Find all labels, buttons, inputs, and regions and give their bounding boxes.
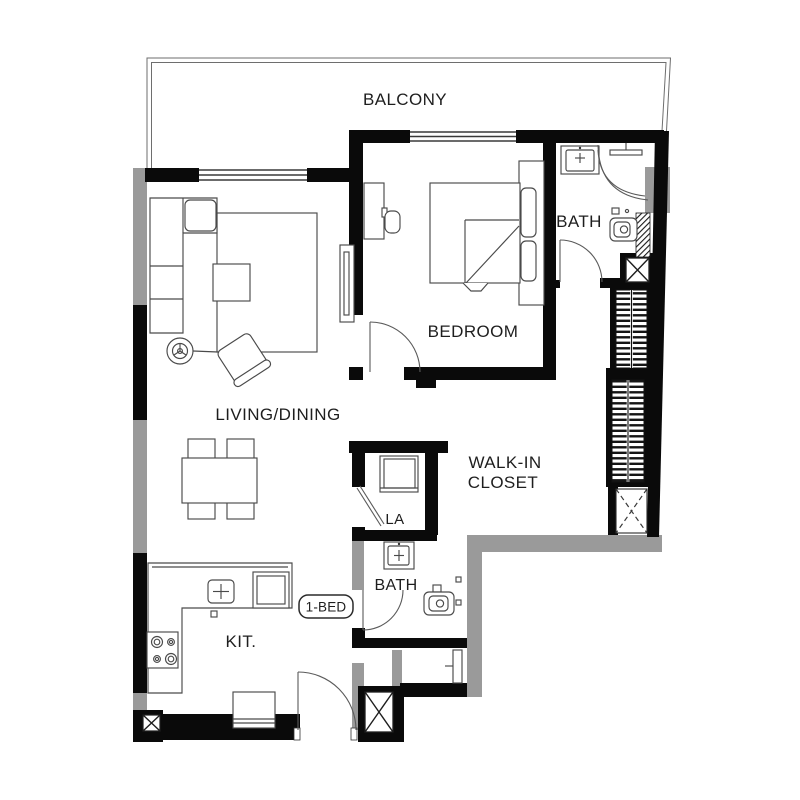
floor-plan-canvas: BALCONY BEDROOM BATH LIVING/DINING WALK-… (0, 0, 800, 800)
floor-plan-drawing: BALCONY BEDROOM BATH LIVING/DINING WALK-… (0, 0, 800, 800)
bed (430, 161, 544, 305)
unit-type-badge-label: 1-BED (306, 600, 347, 615)
stove (147, 632, 178, 668)
unit-type-badge: 1-BED (299, 595, 353, 618)
sink (384, 542, 414, 569)
dining-table (182, 458, 257, 503)
bedroom-label: BEDROOM (428, 322, 519, 341)
bath-upper-label: BATH (556, 212, 602, 231)
coffee-table (213, 264, 250, 301)
pillow (521, 241, 536, 281)
bath-lower-label: BATH (374, 577, 417, 594)
sink (561, 146, 599, 174)
walk-in-closet-label-line2: CLOSET (468, 473, 538, 492)
tiled-wall-hatch (636, 213, 650, 257)
fridge (253, 572, 289, 608)
entry-closet-door (453, 650, 462, 683)
desk-chair (385, 211, 400, 233)
walk-in-closet-label-line1: WALK-IN (468, 453, 541, 472)
entry-cabinet (233, 692, 275, 728)
laundry-label: LA (385, 511, 404, 528)
living-dining-label: LIVING/DINING (215, 405, 340, 424)
balcony-label: BALCONY (363, 90, 447, 109)
washing-machine (380, 456, 418, 492)
sofa-end-seat (185, 200, 216, 231)
pillow (521, 188, 536, 237)
kitchen-label: KIT. (226, 632, 257, 651)
tv-unit (340, 245, 354, 322)
